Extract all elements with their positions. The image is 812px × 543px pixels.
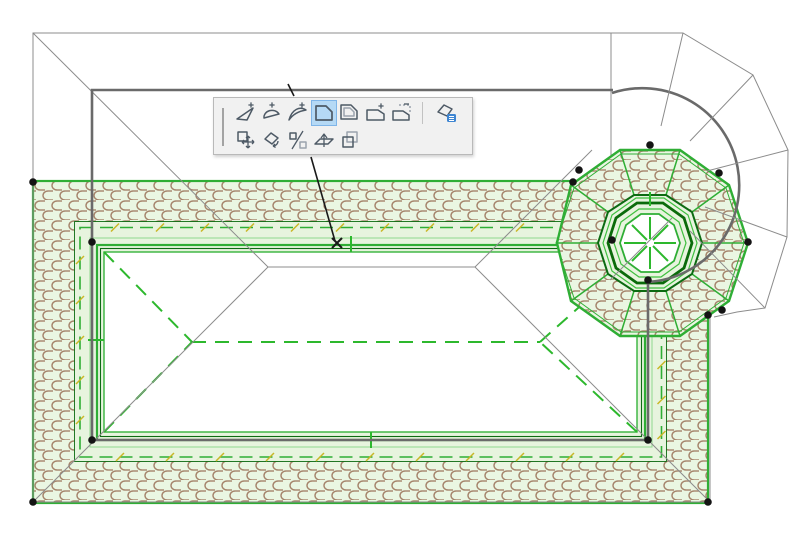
- application-window: [0, 0, 812, 543]
- palette-button-add-to-polygon[interactable]: [363, 100, 389, 126]
- palette-button-curve-edge[interactable]: [259, 100, 285, 126]
- selection-handle[interactable]: [608, 236, 616, 244]
- palette-button-subtract-from-polygon[interactable]: [389, 100, 415, 126]
- selection-handle[interactable]: [644, 436, 652, 444]
- palette-button-insert-vertex[interactable]: [233, 100, 259, 126]
- selection-handle[interactable]: [744, 238, 752, 246]
- selection-handle[interactable]: [88, 436, 96, 444]
- palette-separator: [422, 102, 423, 124]
- palette-button-offset-edge[interactable]: [311, 100, 337, 126]
- palette-button-offset-all-edges[interactable]: [337, 100, 363, 126]
- palette-button-mirror[interactable]: [285, 127, 311, 153]
- selection-handle[interactable]: [704, 311, 712, 319]
- palette-drag-handle[interactable]: [222, 108, 224, 146]
- palette-button-elevate[interactable]: [311, 127, 337, 153]
- palette-row-2: [233, 127, 363, 153]
- drawing-canvas[interactable]: [0, 0, 812, 543]
- selection-handle[interactable]: [575, 166, 583, 174]
- selection-handle[interactable]: [29, 178, 37, 186]
- selection-handle[interactable]: [704, 498, 712, 506]
- palette-button-rotate[interactable]: [259, 127, 285, 153]
- selection-handle[interactable]: [646, 141, 654, 149]
- palette-button-tool-settings[interactable]: [430, 100, 462, 126]
- selection-handle[interactable]: [569, 178, 577, 186]
- selection-handle[interactable]: [715, 169, 723, 177]
- palette-button-drag[interactable]: [233, 127, 259, 153]
- palette-row-1: [233, 100, 462, 126]
- selection-handle[interactable]: [718, 306, 726, 314]
- pet-palette[interactable]: [213, 97, 473, 155]
- selection-handle[interactable]: [644, 276, 652, 284]
- palette-button-edit-curve[interactable]: [285, 100, 311, 126]
- selection-handle[interactable]: [88, 238, 96, 246]
- selection-handle[interactable]: [29, 498, 37, 506]
- palette-button-multiply[interactable]: [337, 127, 363, 153]
